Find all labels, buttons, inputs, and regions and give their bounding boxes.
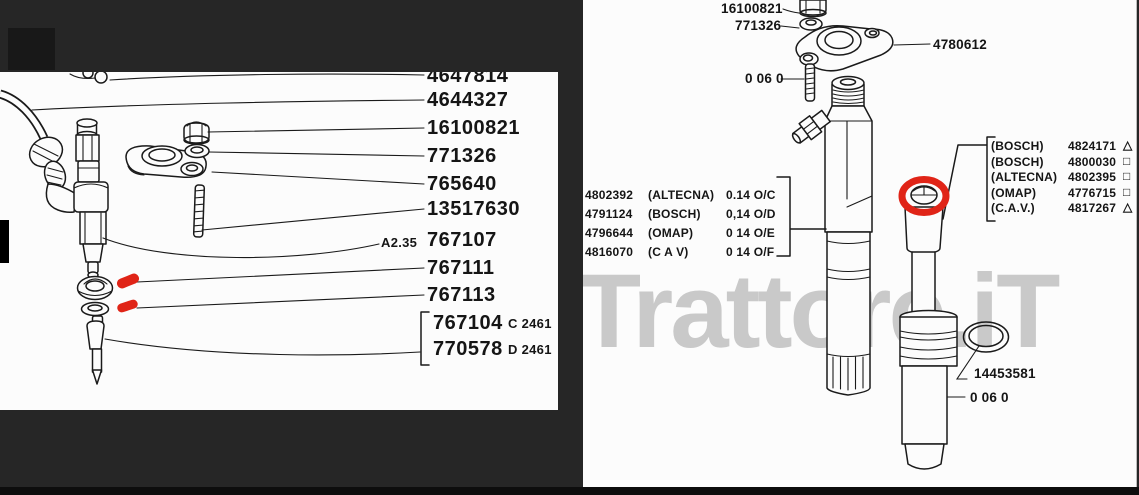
injector-body-drawing — [788, 77, 872, 396]
left-variant-bracket — [777, 177, 826, 256]
part-number-label: 14453581 — [974, 367, 1036, 381]
nut-drawing — [800, 0, 826, 17]
bearing-ring-drawing — [78, 277, 113, 300]
part-number-label: 767113 — [427, 285, 496, 305]
table-cell-maker: (C.A.V.) — [991, 202, 1035, 214]
table-cell-maker: (BOSCH) — [991, 140, 1044, 152]
nozzle-holder-drawing — [900, 186, 957, 469]
table-cell-maker: (ALTECNA) — [991, 171, 1057, 183]
table-cell-symbol: △ — [1123, 201, 1132, 213]
table-cell-spec: 0 14 O/E — [726, 227, 775, 239]
o-ring-drawing — [964, 322, 1009, 352]
table-cell-symbol: △ — [1123, 139, 1132, 151]
right-variant-bracket — [943, 137, 995, 221]
alternatives-bracket — [421, 312, 429, 365]
part-number-label: 16100821 — [721, 2, 783, 16]
injector-nozzle-drawing — [583, 0, 1136, 488]
part-number-label: 0 06 0 — [745, 72, 784, 86]
part-number-label: 4647814 — [427, 72, 508, 86]
needle-valve-drawing — [87, 316, 104, 384]
part-ref-suffix: D 2461 — [508, 343, 552, 356]
injector-body-drawing — [74, 119, 108, 278]
table-cell-part: 4817267 — [1068, 202, 1116, 214]
part-number-label: 767111 — [427, 258, 495, 278]
part-number-label: 765640 — [427, 174, 497, 194]
table-cell-part: 4816070 — [585, 246, 633, 258]
table-cell-part: 4800030 — [1068, 156, 1116, 168]
table-cell-spec: 0.14 O/C — [726, 189, 776, 201]
table-cell-symbol: □ — [1123, 155, 1130, 167]
washer-drawing — [800, 18, 822, 30]
washer-drawing — [185, 145, 209, 158]
table-cell-maker: (BOSCH) — [991, 156, 1044, 168]
table-cell-part: 4796644 — [585, 227, 633, 239]
part-number-label: 4780612 — [933, 38, 987, 52]
table-cell-maker: (OMAP) — [991, 187, 1036, 199]
nut-drawing — [184, 122, 209, 144]
part-number-label: 767104 — [433, 313, 503, 333]
table-cell-part: 4802395 — [1068, 171, 1116, 183]
part-number-label: 771326 — [735, 19, 781, 33]
right-diagram-panel: Trattore.iT — [583, 0, 1137, 488]
part-number-label: 0 06 0 — [970, 391, 1009, 405]
table-cell-symbol: □ — [1123, 186, 1130, 198]
table-cell-part: 4776715 — [1068, 187, 1116, 199]
table-cell-maker: (C A V) — [648, 246, 689, 258]
table-cell-symbol: □ — [1123, 170, 1130, 182]
banjo-fitting-drawing — [24, 132, 76, 213]
part-number-label: 13517630 — [427, 199, 520, 219]
scan-artifact-dark-rect — [8, 28, 55, 70]
stud-drawing — [806, 64, 815, 101]
scan-artifact-bottom-strip — [0, 487, 1139, 495]
part-number-label: 767107 — [427, 230, 497, 250]
table-cell-maker: (OMAP) — [648, 227, 693, 239]
table-cell-spec: 0,14 O/D — [726, 208, 776, 220]
table-cell-maker: (ALTECNA) — [648, 189, 714, 201]
part-number-label: 4644327 — [427, 90, 508, 110]
part-number-label: 770578 — [433, 339, 503, 359]
table-cell-part: 4791124 — [585, 208, 632, 220]
part-ref-prefix: A2.35 — [381, 236, 417, 249]
part-number-label: 16100821 — [427, 118, 520, 138]
part-ref-suffix: C 2461 — [508, 317, 552, 330]
table-cell-spec: 0 14 O/F — [726, 246, 774, 258]
part-number-label: 771326 — [427, 146, 497, 166]
red-highlight-marks — [115, 272, 140, 313]
stud-drawing — [194, 185, 205, 237]
table-cell-part: 4824171 — [1068, 140, 1116, 152]
left-diagram-panel: 4647814 4644327 16100821 771326 765640 1… — [0, 72, 558, 410]
seal-washer-drawing — [82, 303, 109, 316]
table-cell-maker: (BOSCH) — [648, 208, 701, 220]
catalog-page: 4647814 4644327 16100821 771326 765640 1… — [0, 0, 1139, 495]
table-cell-part: 4802392 — [585, 189, 633, 201]
